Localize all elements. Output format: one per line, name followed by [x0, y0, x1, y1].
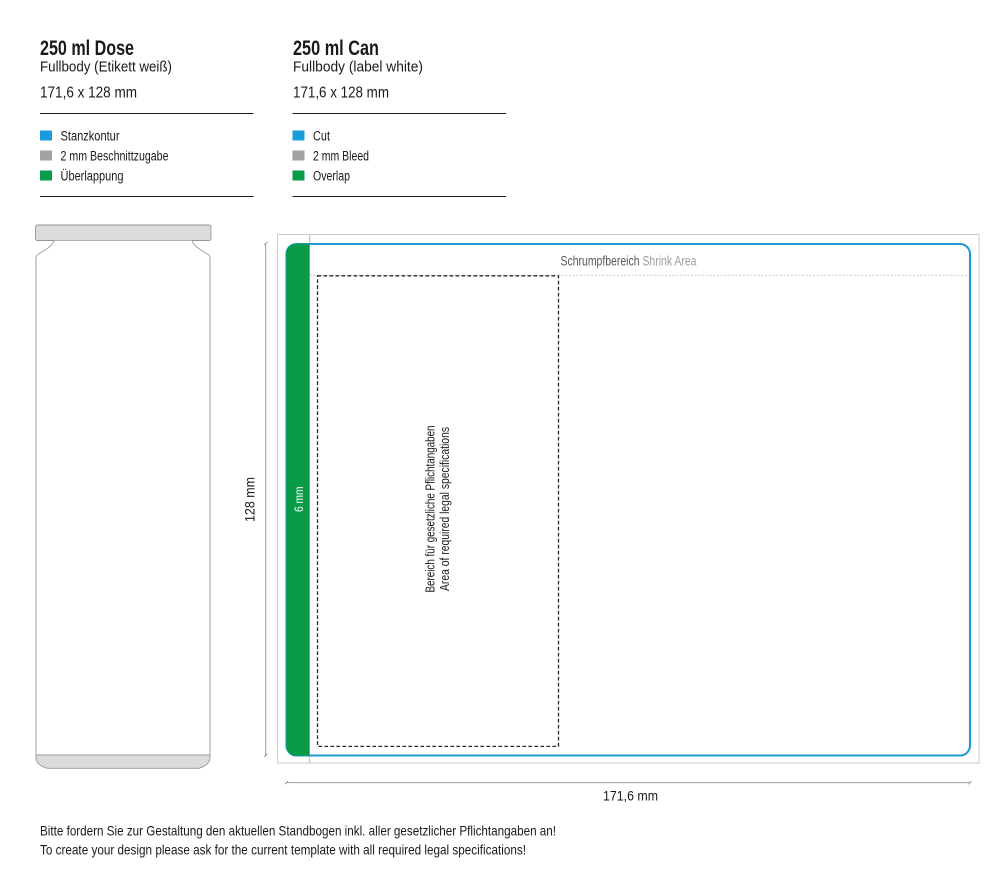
svg-text:Bereich für gesetzliche Pflich: Bereich für gesetzliche Pflichtangaben	[422, 426, 437, 593]
svg-text:Area of required legal specifi: Area of required legal specifications	[437, 427, 452, 591]
svg-text:Schrumpfbereich Shrink Area: Schrumpfbereich Shrink Area	[561, 253, 697, 269]
svg-text:Fullbody (Etikett weiß): Fullbody (Etikett weiß)	[40, 60, 172, 76]
svg-text:Stanzkontur: Stanzkontur	[61, 129, 120, 144]
svg-text:To create your design please a: To create your design please ask for the…	[40, 842, 526, 858]
svg-text:250 ml Can: 250 ml Can	[293, 37, 379, 60]
svg-text:2 mm Bleed: 2 mm Bleed	[313, 149, 369, 164]
svg-text:2 mm Beschnittzugabe: 2 mm Beschnittzugabe	[61, 149, 169, 164]
svg-text:128 mm: 128 mm	[242, 477, 258, 522]
svg-text:250 ml Dose: 250 ml Dose	[40, 37, 134, 60]
svg-text:Überlappung: Überlappung	[61, 169, 124, 184]
svg-text:171,6 x 128 mm: 171,6 x 128 mm	[40, 85, 137, 102]
svg-text:Bitte fordern Sie zur Gestaltu: Bitte fordern Sie zur Gestaltung den akt…	[40, 823, 556, 839]
svg-text:6 mm: 6 mm	[292, 486, 306, 512]
svg-text:171,6 mm: 171,6 mm	[603, 788, 658, 804]
svg-text:Overlap: Overlap	[313, 169, 350, 184]
svg-text:171,6 x 128 mm: 171,6 x 128 mm	[293, 85, 389, 102]
svg-text:Cut: Cut	[313, 129, 330, 144]
svg-text:Fullbody (label white): Fullbody (label white)	[293, 60, 423, 76]
